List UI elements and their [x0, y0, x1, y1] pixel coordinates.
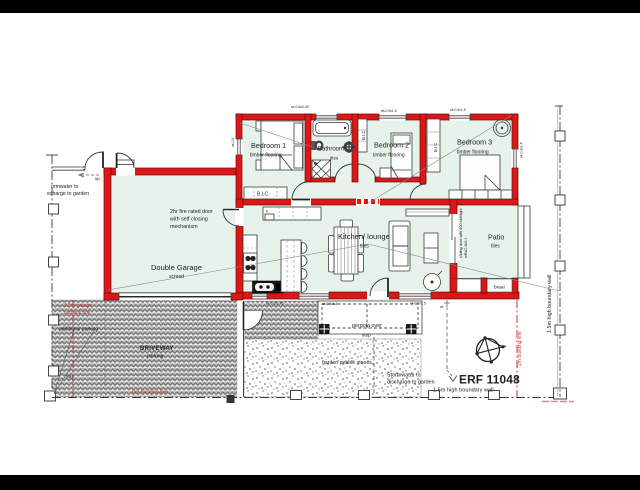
svg-text:Kitchen/ lounge: Kitchen/ lounge	[338, 232, 390, 241]
svg-text:Stormwater to: Stormwater to	[387, 373, 421, 379]
svg-text:parking: parking	[147, 354, 164, 360]
svg-text:Bedroom 1: Bedroom 1	[251, 141, 286, 150]
svg-text:braai: braai	[494, 285, 505, 291]
svg-text:fr.: fr.	[266, 210, 269, 214]
svg-text:wt-0.9x1.5: wt-0.9x1.5	[322, 302, 338, 306]
svg-text:setback line: setback line	[64, 310, 91, 316]
svg-text:sliding door with 600 sideligh: sliding door with 600 sidelight	[459, 207, 463, 258]
svg-text:wt-0.6x0.45: wt-0.6x0.45	[291, 105, 309, 109]
svg-text:additional parking: additional parking	[59, 327, 98, 333]
svg-text:mechanism: mechanism	[170, 224, 198, 230]
svg-text:wt-0.9x1.5: wt-0.9x1.5	[381, 109, 397, 113]
svg-text:wRxD:4k0.1: wRxD:4k0.1	[464, 238, 468, 258]
svg-text:pergola over: pergola over	[352, 323, 382, 329]
svg-text:ormwater to: ormwater to	[51, 184, 79, 190]
svg-text:1.5m high boundary wall: 1.5m high boundary wall	[433, 388, 494, 394]
svg-text:wt-0.9: wt-0.9	[231, 138, 235, 147]
svg-text:timber flooring: timber flooring	[373, 153, 405, 159]
svg-text:wt: wt	[440, 305, 443, 309]
svg-text:wt-0.9x1.5: wt-0.9x1.5	[520, 142, 524, 158]
svg-text:tiles: tiles	[491, 244, 500, 250]
svg-text:wt-0.6x0.45: wt-0.6x0.45	[266, 302, 284, 306]
svg-text:screed: screed	[169, 274, 184, 280]
svg-text:0m building line: 0m building line	[132, 390, 168, 396]
svg-text:DRIVEWAY: DRIVEWAY	[140, 346, 174, 352]
svg-text:2m building line: 2m building line	[517, 331, 523, 366]
svg-text:2hr fire rated door: 2hr fire rated door	[170, 209, 213, 215]
svg-text:4.5m garage: 4.5m garage	[64, 303, 92, 309]
svg-text:with self closing: with self closing	[169, 217, 208, 223]
svg-text:up: up	[95, 176, 100, 181]
svg-text:timber flooring: timber flooring	[250, 153, 282, 159]
svg-text:echarge to garden: echarge to garden	[47, 191, 89, 197]
svg-text:wt-0.9x1.5: wt-0.9x1.5	[410, 302, 426, 306]
svg-text:discharge to garden: discharge to garden	[387, 380, 435, 386]
svg-text:wt-0.9x1.5: wt-0.9x1.5	[450, 108, 466, 112]
svg-text:tiles: tiles	[360, 244, 369, 250]
svg-text:Bedroom 3: Bedroom 3	[457, 138, 492, 147]
svg-text:Patio: Patio	[488, 233, 504, 242]
svg-text:step: step	[362, 333, 371, 338]
svg-text:B.I.C: B.I.C	[433, 143, 438, 152]
svg-text:tiles: tiles	[330, 156, 339, 161]
svg-text:B.I.C: B.I.C	[361, 131, 366, 140]
svg-text:Double Garage: Double Garage	[151, 263, 202, 272]
svg-text:Bathroom: Bathroom	[318, 147, 344, 153]
svg-text:Bedroom 2: Bedroom 2	[374, 141, 409, 150]
svg-text:garden pebble stones: garden pebble stones	[322, 360, 372, 366]
svg-text:MH: MH	[66, 374, 73, 379]
svg-text:timber flooring: timber flooring	[457, 150, 489, 156]
svg-text:ERF 11048: ERF 11048	[459, 373, 520, 387]
svg-text:B.I.C: B.I.C	[257, 192, 269, 198]
svg-text:1.5m high boundary wall: 1.5m high boundary wall	[547, 275, 553, 333]
